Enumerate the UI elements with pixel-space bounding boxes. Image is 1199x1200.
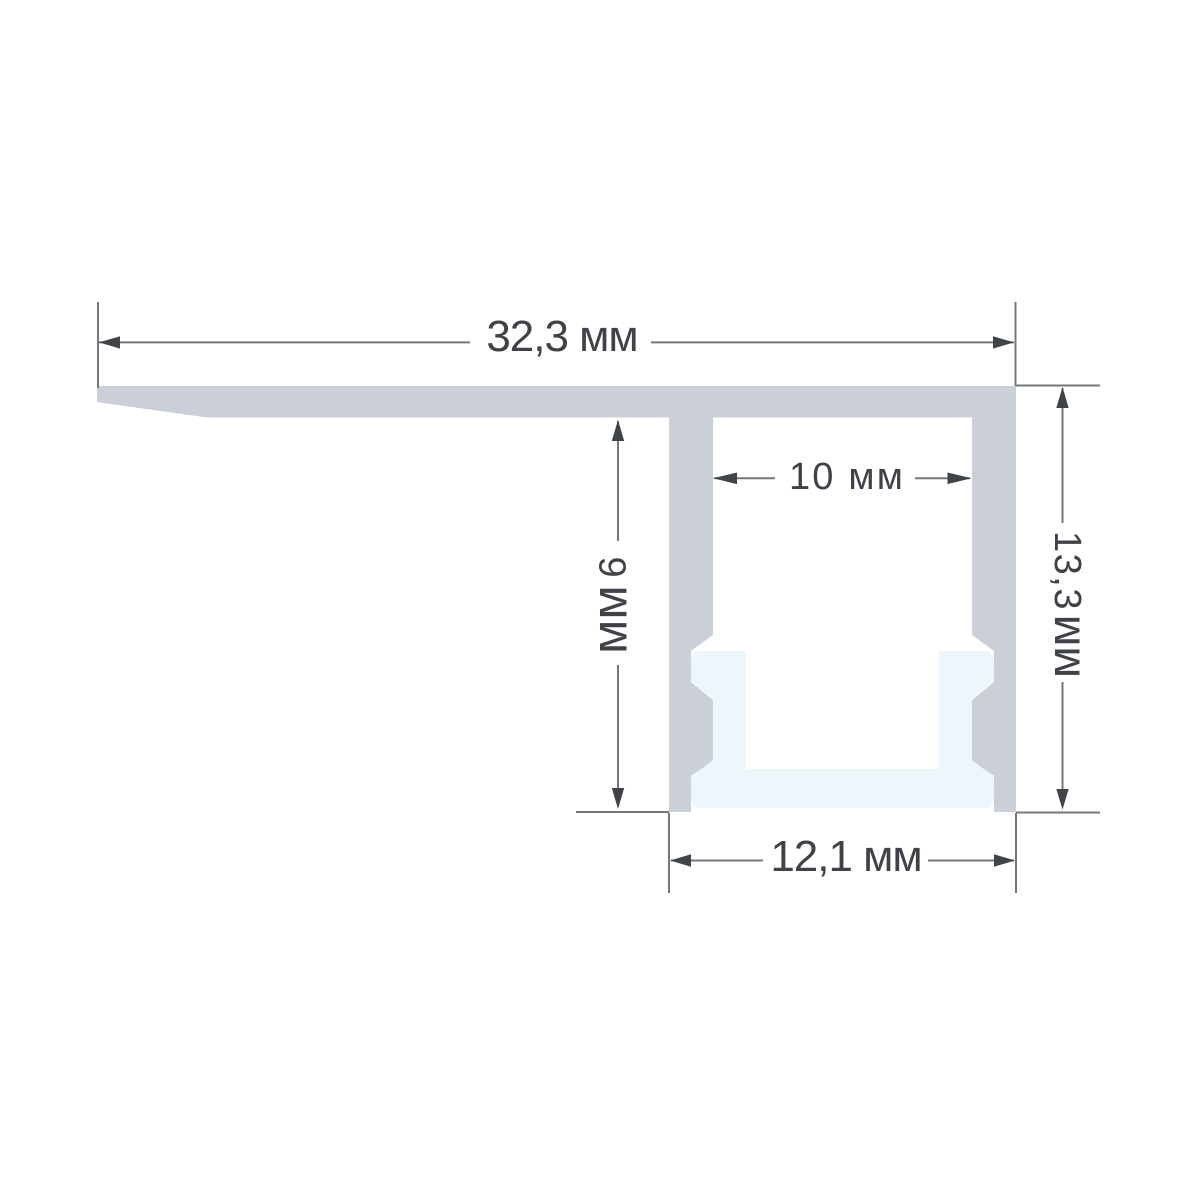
svg-text:мм: мм xyxy=(582,585,638,654)
svg-text:13,3: 13,3 xyxy=(1046,531,1088,611)
svg-text:12,1 мм: 12,1 мм xyxy=(770,832,921,881)
svg-text:мм: мм xyxy=(1038,615,1090,678)
svg-text:10 мм: 10 мм xyxy=(789,456,905,498)
svg-text:32,3 мм: 32,3 мм xyxy=(486,312,637,361)
svg-text:9: 9 xyxy=(591,557,633,578)
